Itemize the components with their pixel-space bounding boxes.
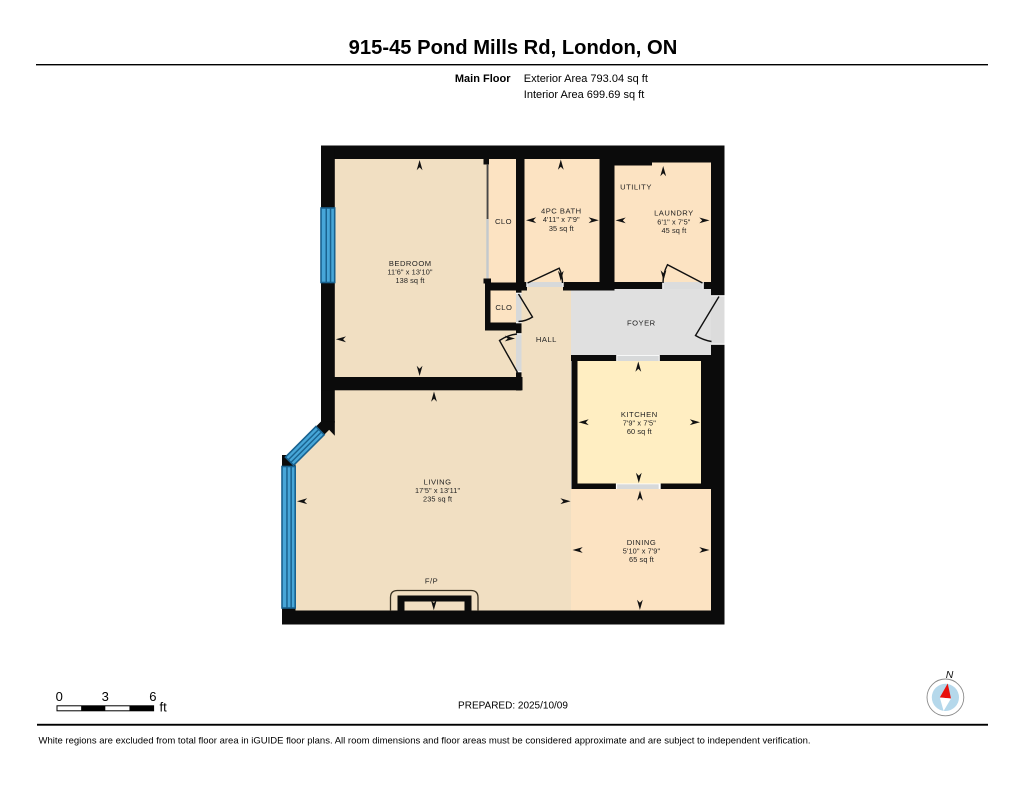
- svg-text:Main Floor: Main Floor: [455, 73, 511, 85]
- svg-text:138 sq ft: 138 sq ft: [395, 276, 424, 285]
- svg-text:0: 0: [56, 689, 63, 704]
- svg-text:60 sq ft: 60 sq ft: [627, 427, 652, 436]
- svg-text:3: 3: [102, 689, 109, 704]
- svg-text:35 sq ft: 35 sq ft: [549, 224, 574, 233]
- svg-text:F/P: F/P: [425, 577, 438, 586]
- svg-text:Interior Area 699.69 sq ft: Interior Area 699.69 sq ft: [524, 89, 644, 101]
- svg-text:915-45 Pond Mills Rd, London,: 915-45 Pond Mills Rd, London, ON: [349, 37, 678, 59]
- svg-text:FOYER: FOYER: [627, 318, 656, 327]
- svg-text:6: 6: [149, 689, 156, 704]
- svg-text:45 sq ft: 45 sq ft: [661, 226, 686, 235]
- svg-text:65 sq ft: 65 sq ft: [629, 555, 654, 564]
- svg-text:CLO: CLO: [495, 303, 512, 312]
- svg-text:UTILITY: UTILITY: [620, 183, 652, 192]
- svg-text:PREPARED: 2025/10/09: PREPARED: 2025/10/09: [458, 701, 568, 712]
- svg-text:N: N: [946, 669, 954, 681]
- svg-text:CLO: CLO: [495, 217, 512, 226]
- svg-text:ft: ft: [160, 700, 168, 715]
- svg-text:235 sq ft: 235 sq ft: [423, 495, 452, 504]
- svg-text:White regions are excluded fro: White regions are excluded from total fl…: [39, 736, 811, 747]
- svg-text:Exterior Area 793.04 sq ft: Exterior Area 793.04 sq ft: [524, 73, 648, 85]
- svg-text:HALL: HALL: [536, 335, 557, 344]
